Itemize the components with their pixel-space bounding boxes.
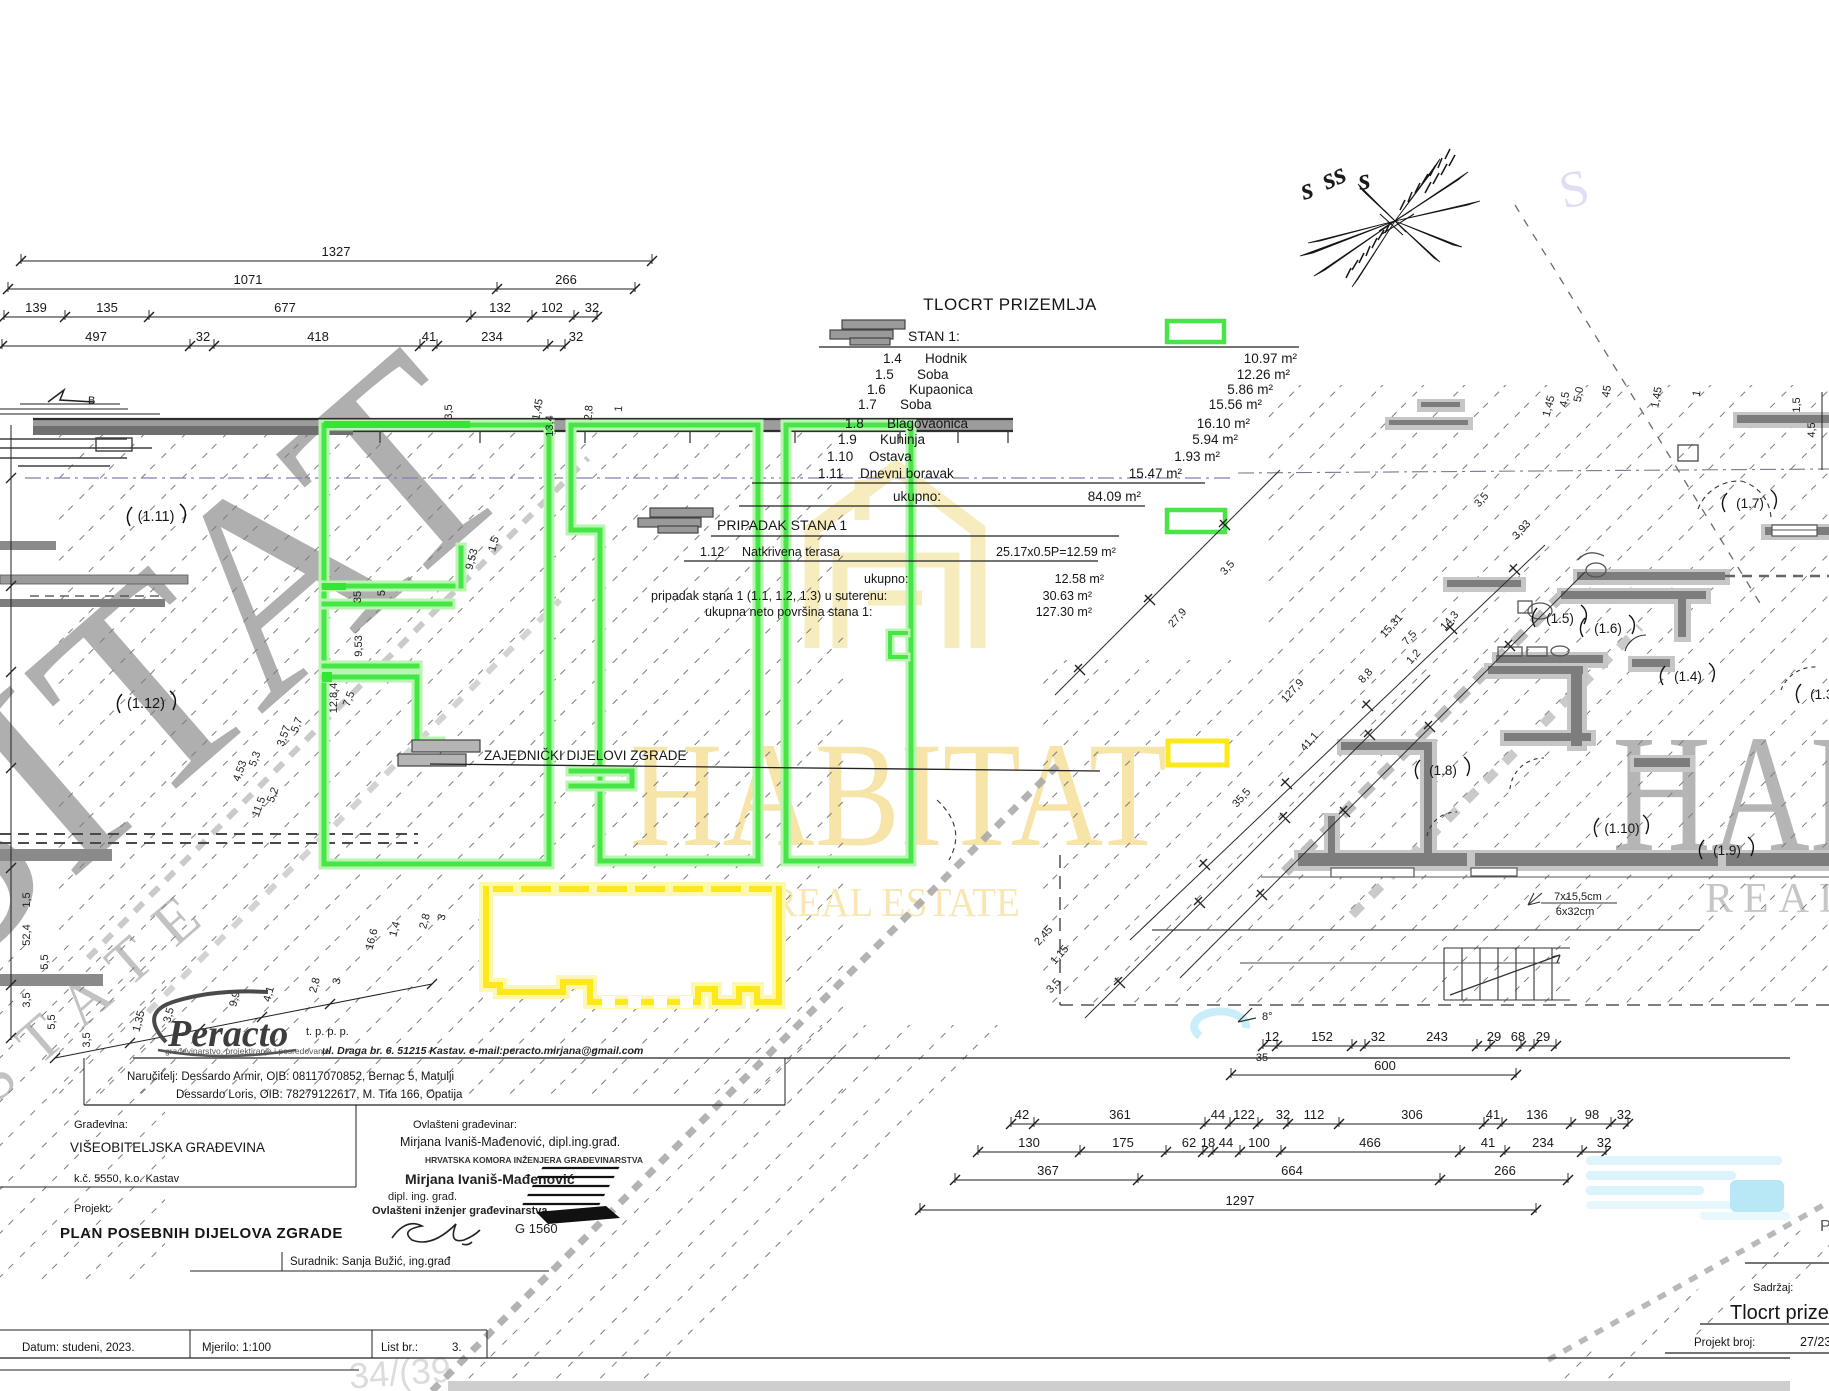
- svg-text:(1.3): (1.3): [1810, 687, 1829, 702]
- svg-text:Građevina:: Građevina:: [74, 1119, 128, 1131]
- svg-text:B: B: [88, 395, 95, 407]
- svg-text:Projekt:: Projekt:: [74, 1203, 111, 1215]
- svg-text:Hodnik: Hodnik: [925, 351, 967, 366]
- svg-text:dipl. ing. građ.: dipl. ing. građ.: [388, 1191, 457, 1203]
- svg-text:84.09 m²: 84.09 m²: [1088, 489, 1142, 504]
- svg-text:9,53: 9,53: [353, 635, 365, 656]
- svg-text:12: 12: [1265, 1029, 1279, 1044]
- svg-text:1.5: 1.5: [875, 367, 894, 382]
- svg-text:1.11: 1.11: [818, 466, 843, 481]
- svg-text:ZAJEDNIČKI DIJELOVI ZGRADE: ZAJEDNIČKI DIJELOVI ZGRADE: [484, 748, 687, 763]
- svg-text:664: 664: [1281, 1163, 1303, 1178]
- svg-text:41: 41: [422, 329, 436, 344]
- svg-text:29: 29: [1487, 1029, 1501, 1044]
- svg-text:3,5: 3,5: [81, 1032, 93, 1047]
- svg-text:112: 112: [1304, 1107, 1325, 1122]
- svg-text:5,5: 5,5: [46, 1014, 58, 1029]
- svg-text:44: 44: [1211, 1107, 1225, 1122]
- svg-text:ukupna neto površina stana 1:: ukupna neto površina stana 1:: [705, 605, 872, 619]
- svg-text:TLOCRT PRIZEMLJA: TLOCRT PRIZEMLJA: [923, 295, 1097, 314]
- svg-text:ukupno:: ukupno:: [893, 489, 941, 504]
- svg-text:1.12: 1.12: [700, 545, 724, 559]
- svg-text:306: 306: [1401, 1107, 1423, 1122]
- svg-text:18: 18: [1201, 1135, 1215, 1150]
- svg-text:Naručitelj: Dessardo Armir, O: Naručitelj: Dessardo Armir, OIB: 0811707…: [127, 1071, 454, 1083]
- svg-text:PRIPADAK STANA 1: PRIPADAK STANA 1: [717, 517, 847, 533]
- svg-text:građevinarstvo, projektiranje: građevinarstvo, projektiranje i posredov…: [165, 1046, 330, 1056]
- svg-text:Blagovaonica: Blagovaonica: [887, 416, 969, 431]
- svg-text:1.4: 1.4: [883, 351, 902, 366]
- svg-text:136: 136: [1526, 1107, 1548, 1122]
- svg-text:k.č. 5550, k.o. Kastav: k.č. 5550, k.o. Kastav: [74, 1173, 180, 1185]
- svg-text:25.17x0.5P=12.59 m²: 25.17x0.5P=12.59 m²: [996, 545, 1116, 559]
- svg-text:G 1560: G 1560: [515, 1221, 558, 1236]
- svg-text:Dnevni boravak: Dnevni boravak: [860, 466, 954, 481]
- svg-text:32: 32: [569, 329, 583, 344]
- svg-text:32: 32: [196, 329, 210, 344]
- svg-text:t. p. p. p.: t. p. p. p.: [306, 1026, 349, 1038]
- svg-text:243: 243: [1426, 1029, 1448, 1044]
- svg-text:Ovlašteni inženjer građevinars: Ovlašteni inženjer građevinarstva: [372, 1205, 548, 1217]
- svg-text:127.30 m²: 127.30 m²: [1036, 605, 1092, 619]
- svg-text:1,5: 1,5: [1791, 397, 1803, 412]
- svg-text:35: 35: [352, 591, 364, 603]
- svg-text:6x32cm: 6x32cm: [1556, 906, 1595, 918]
- svg-text:677: 677: [274, 300, 296, 315]
- svg-text:32: 32: [1617, 1107, 1631, 1122]
- svg-text:VIŠEOBITELJSKA GRAĐEVINA: VIŠEOBITELJSKA GRAĐEVINA: [70, 1140, 265, 1155]
- svg-text:32: 32: [585, 300, 599, 315]
- svg-text:15.47 m²: 15.47 m²: [1129, 466, 1183, 481]
- svg-text:102: 102: [541, 300, 563, 315]
- svg-text:32: 32: [1276, 1107, 1290, 1122]
- svg-text:27/23: 27/23: [1800, 1335, 1829, 1349]
- svg-text:3.: 3.: [452, 1342, 462, 1354]
- svg-text:1297: 1297: [1226, 1193, 1255, 1208]
- svg-text:5,5: 5,5: [39, 954, 51, 969]
- svg-text:361: 361: [1109, 1107, 1131, 1122]
- svg-text:32: 32: [1597, 1135, 1611, 1150]
- svg-text:2,8: 2,8: [582, 405, 595, 421]
- svg-text:4,5: 4,5: [1806, 422, 1818, 437]
- svg-text:29: 29: [1536, 1029, 1550, 1044]
- svg-text:(1.7): (1.7): [1736, 496, 1764, 511]
- svg-text:3,5: 3,5: [443, 404, 455, 419]
- svg-text:(1.4): (1.4): [1674, 669, 1702, 684]
- svg-text:8°: 8°: [1262, 1011, 1273, 1023]
- svg-text:(1.8): (1.8): [1429, 763, 1457, 778]
- svg-text:418: 418: [307, 329, 329, 344]
- svg-text:Mirjana Ivaniš-Mađenović, dipl: Mirjana Ivaniš-Mađenović, dipl.ing.građ.: [400, 1135, 620, 1149]
- svg-text:497: 497: [85, 329, 107, 344]
- svg-text:12.26 m²: 12.26 m²: [1237, 367, 1291, 382]
- svg-text:Tlocrt prizemlja: Tlocrt prizemlja: [1730, 1302, 1829, 1324]
- svg-text:367: 367: [1037, 1163, 1059, 1178]
- svg-text:Mirjana Ivaniš-Mađenović: Mirjana Ivaniš-Mađenović: [405, 1171, 575, 1187]
- svg-text:1.8: 1.8: [845, 416, 864, 431]
- svg-text:100: 100: [1248, 1135, 1270, 1150]
- svg-text:PLAN POSEBNIH DIJELOVA ZGRADE: PLAN POSEBNIH DIJELOVA ZGRADE: [60, 1225, 343, 1242]
- svg-text:122: 122: [1233, 1107, 1255, 1122]
- svg-text:Sadržaj:: Sadržaj:: [1753, 1282, 1793, 1294]
- svg-text:234: 234: [481, 329, 503, 344]
- svg-text:PJ: PJ: [1820, 1218, 1829, 1235]
- svg-text:52,4: 52,4: [21, 924, 33, 945]
- svg-text:5.94 m²: 5.94 m²: [1192, 432, 1238, 447]
- svg-text:98: 98: [1585, 1107, 1599, 1122]
- svg-text:1.9: 1.9: [838, 432, 857, 447]
- svg-text:68: 68: [1511, 1029, 1525, 1044]
- svg-text:Suradnik: Sanja Bužić, ing.gra: Suradnik: Sanja Bužić, ing.građ: [290, 1256, 451, 1268]
- svg-text:Dessardo Loris, OIB: 782791226: Dessardo Loris, OIB: 78279122617, M. Tit…: [176, 1089, 463, 1101]
- svg-text:15.56 m²: 15.56 m²: [1209, 397, 1263, 412]
- svg-text:(1.12): (1.12): [127, 696, 165, 712]
- svg-text:266: 266: [1494, 1163, 1516, 1178]
- svg-text:Soba: Soba: [900, 397, 932, 412]
- svg-text:13,4: 13,4: [544, 415, 556, 436]
- svg-text:Kuhinja: Kuhinja: [880, 432, 926, 447]
- svg-text:Mjerilo: 1:100: Mjerilo: 1:100: [202, 1342, 271, 1354]
- svg-text:1.6: 1.6: [867, 382, 886, 397]
- svg-text:1,5: 1,5: [21, 892, 33, 907]
- svg-text:139: 139: [25, 300, 47, 315]
- svg-text:Datum: studeni, 2023.: Datum: studeni, 2023.: [22, 1342, 135, 1354]
- svg-text:12,8,4: 12,8,4: [328, 683, 340, 714]
- svg-text:12.58 m²: 12.58 m²: [1055, 572, 1104, 586]
- svg-text:3,5: 3,5: [21, 992, 33, 1007]
- svg-text:STAN 1:: STAN 1:: [908, 328, 960, 344]
- svg-text:(1.11): (1.11): [138, 509, 175, 525]
- svg-text:44: 44: [1219, 1135, 1233, 1150]
- svg-text:42: 42: [1015, 1107, 1029, 1122]
- svg-text:5.86 m²: 5.86 m²: [1227, 382, 1273, 397]
- svg-text:152: 152: [1311, 1029, 1333, 1044]
- svg-text:List br.:: List br.:: [381, 1342, 418, 1354]
- svg-text:10.97 m²: 10.97 m²: [1244, 351, 1298, 366]
- svg-text:30.63 m²: 30.63 m²: [1043, 589, 1092, 603]
- svg-text:266: 266: [555, 272, 577, 287]
- svg-text:(1.10): (1.10): [1604, 821, 1639, 836]
- svg-text:175: 175: [1112, 1135, 1134, 1150]
- svg-text:Ostava: Ostava: [869, 449, 912, 464]
- svg-text:45: 45: [1600, 384, 1614, 398]
- svg-text:Natkrivena terasa: Natkrivena terasa: [742, 545, 840, 559]
- svg-text:(1.6): (1.6): [1594, 621, 1622, 636]
- svg-text:(1.9): (1.9): [1713, 843, 1741, 858]
- svg-text:1327: 1327: [322, 244, 351, 259]
- svg-text:ukupno:: ukupno:: [864, 572, 908, 586]
- svg-text:16.10 m²: 16.10 m²: [1197, 416, 1251, 431]
- svg-text:5: 5: [376, 590, 388, 596]
- svg-text:600: 600: [1374, 1058, 1396, 1073]
- svg-text:7x15,5cm: 7x15,5cm: [1554, 891, 1602, 903]
- svg-text:234: 234: [1532, 1135, 1554, 1150]
- svg-text:1071: 1071: [234, 272, 263, 287]
- svg-text:1.10: 1.10: [827, 449, 853, 464]
- svg-text:1: 1: [613, 405, 625, 412]
- svg-text:135: 135: [96, 300, 118, 315]
- svg-text:32: 32: [1371, 1029, 1385, 1044]
- svg-text:1.7: 1.7: [858, 397, 877, 412]
- svg-text:132: 132: [489, 300, 511, 315]
- svg-text:Projekt broj:: Projekt broj:: [1694, 1337, 1755, 1349]
- svg-text:130: 130: [1018, 1135, 1040, 1150]
- svg-text:41: 41: [1481, 1135, 1495, 1150]
- svg-text:1.93 m²: 1.93 m²: [1174, 449, 1220, 464]
- svg-text:(1.5): (1.5): [1546, 611, 1574, 626]
- svg-text:Ovlašteni građevinar:: Ovlašteni građevinar:: [413, 1119, 517, 1131]
- svg-text:466: 466: [1359, 1135, 1381, 1150]
- svg-text:Kupaonica: Kupaonica: [909, 382, 973, 397]
- svg-text:HRVATSKA KOMORA INŽENJERA GRAĐ: HRVATSKA KOMORA INŽENJERA GRAĐEVINARSTVA: [425, 1154, 643, 1165]
- svg-text:pripadak stana 1 (1.1, 1.2, 1.: pripadak stana 1 (1.1, 1.2, 1.3) u suter…: [651, 589, 887, 603]
- svg-text:Soba: Soba: [917, 367, 949, 382]
- svg-text:62: 62: [1182, 1135, 1196, 1150]
- svg-text:41: 41: [1486, 1107, 1500, 1122]
- svg-text:ul. Draga br. 6. 51215 Kastav.: ul. Draga br. 6. 51215 Kastav. e-mail:pe…: [322, 1045, 643, 1057]
